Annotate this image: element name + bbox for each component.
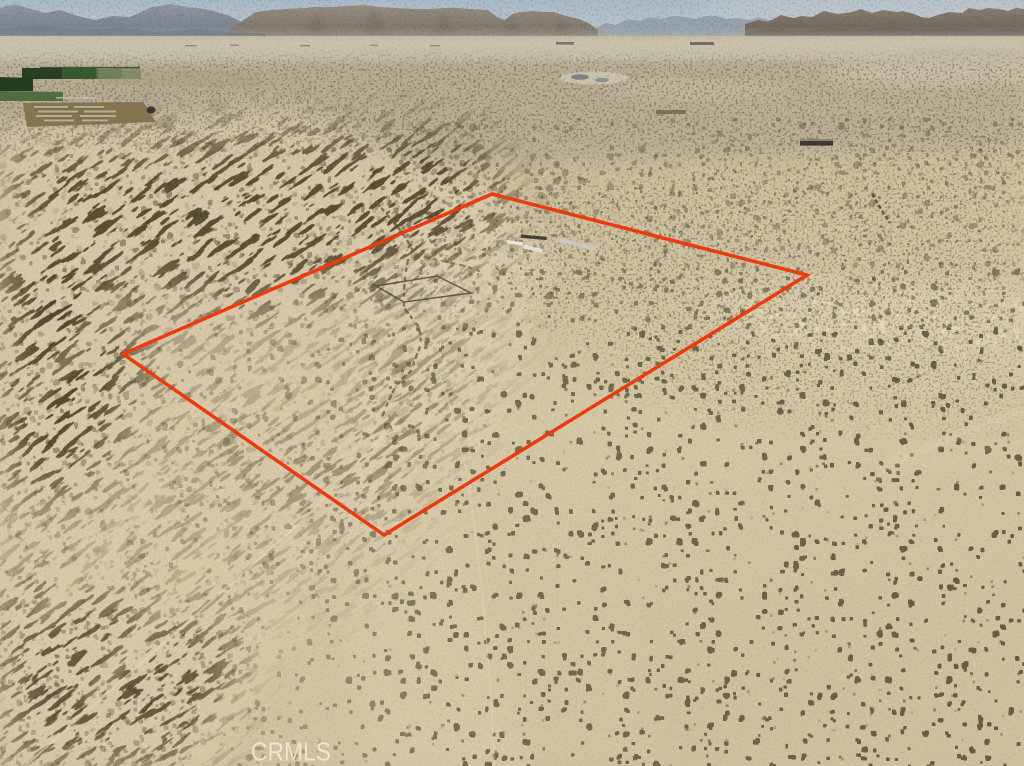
svg-text:CRMLS: CRMLS <box>251 737 331 766</box>
